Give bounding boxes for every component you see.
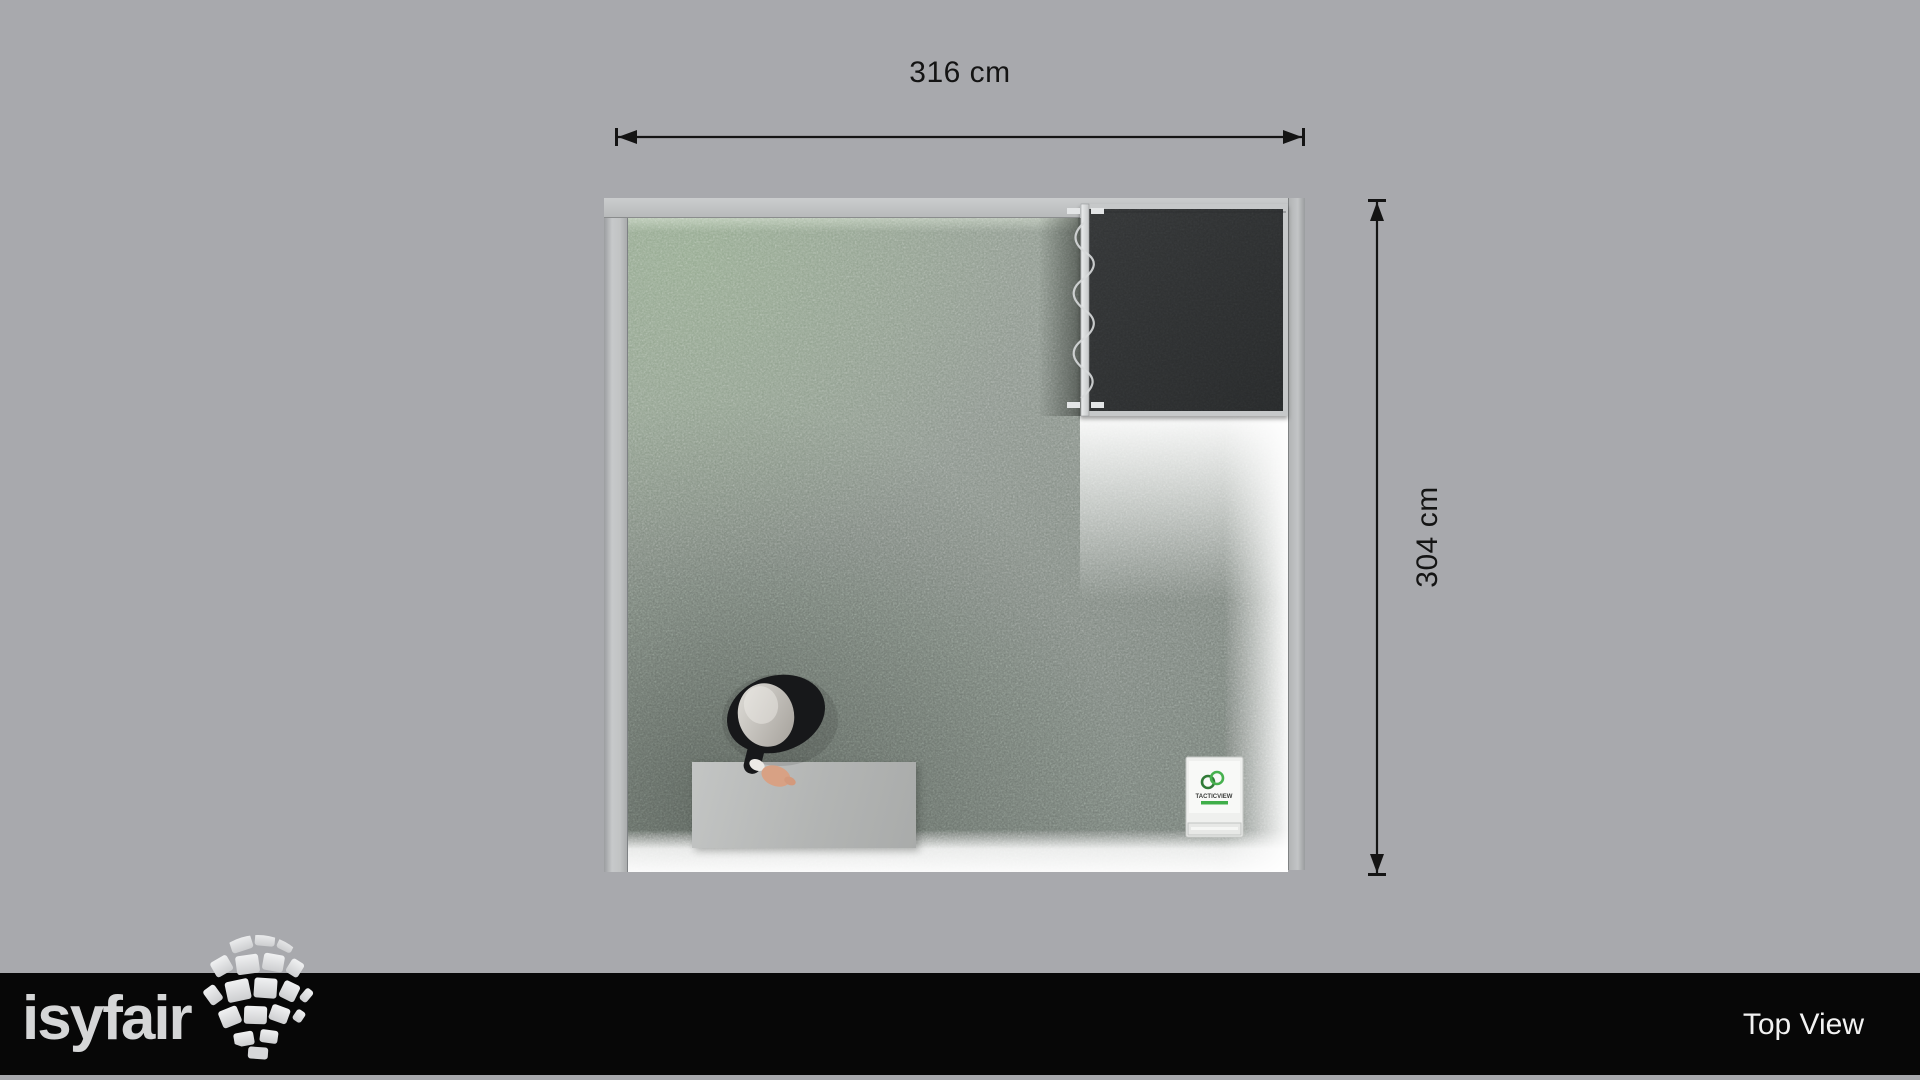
booth-top-view: TACTICVIEW — [604, 198, 1305, 874]
height-dimension-label: 304 cm — [1411, 486, 1445, 587]
isyfair-logo-text: isyfair — [22, 985, 191, 1053]
person-top-view — [717, 662, 838, 790]
sign-green-bar — [1201, 801, 1228, 805]
globe-detached-tile — [248, 1046, 269, 1059]
curtain-rail — [1067, 204, 1104, 416]
booth-overlay: TACTICVIEW — [604, 198, 1305, 874]
width-dimension-label: 316 cm — [880, 56, 1040, 90]
width-dimension-line — [600, 122, 1316, 154]
isyfair-globe-icon — [196, 928, 322, 1062]
literature-stand: TACTICVIEW — [1186, 757, 1243, 837]
view-mode-label: Top View — [1743, 1008, 1864, 1042]
height-dimension-line — [1362, 194, 1394, 882]
render-canvas: 316 cm 304 cm — [0, 0, 1920, 1080]
sign-brand-text: TACTICVIEW — [1196, 794, 1233, 800]
